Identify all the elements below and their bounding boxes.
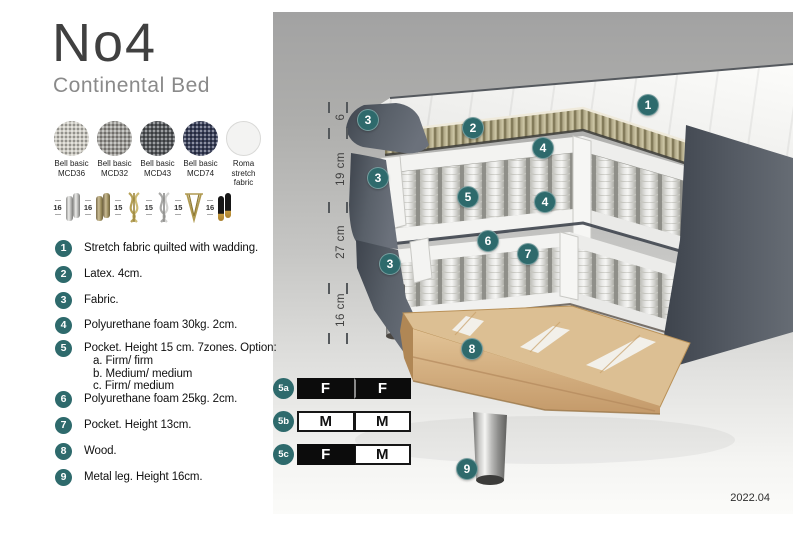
feature-text: Polyurethane foam 25kg. 2cm. [84,391,289,408]
fabric-swatch: Bell basicMCD74 [179,121,222,188]
feature-number-badge: 1 [55,240,72,257]
dimension-tick [328,202,330,213]
diagram-marker-1: 1 [637,94,659,116]
feature-number-badge: 5 [55,340,72,357]
feature-text: Stretch fabric quilted with wadding. [84,240,289,257]
feature-text: Polyurethane foam 30kg. 2cm. [84,317,289,334]
chrome-cylinder-leg-icon [63,192,83,222]
diagram-marker-5: 5 [457,186,479,208]
diagram-marker-2: 2 [462,117,484,139]
feature-item-8: 8Wood. [55,443,289,460]
firmness-bar: MM [297,411,411,432]
leg-option: 16 [205,185,236,229]
diagram-marker-6: 6 [477,230,499,252]
firmness-cell: M [355,411,412,432]
infographic-page: No4 Continental Bed Bell basicMCD36 Bell… [0,0,800,533]
silver-curved-leg-icon [154,191,174,223]
fabric-swatch: Bell basicMCD43 [136,121,179,188]
fabric-swatch-icon [97,121,132,156]
fabric-swatch-icon [226,121,261,156]
firmness-cell: F [297,378,354,399]
fabric-swatch: Romastretch fabric [222,121,265,188]
feature-item-5: 5Pocket. Height 15 cm. 7zones. Option:a.… [55,340,289,393]
leg-option: 15 [113,185,144,229]
feature-number-badge: 3 [55,292,72,309]
page-subtitle: Continental Bed [53,74,210,98]
bronze-cylinder-leg-icon [94,192,114,222]
dimension-tick [346,202,348,213]
diagram-marker-3: 3 [379,253,401,275]
hairpin-leg-icon [183,191,205,223]
fabric-swatch-icon [54,121,89,156]
firmness-cell: M [355,444,412,465]
firmness-badge: 5c [273,444,294,465]
diagram-marker-3: 3 [367,167,389,189]
fabric-swatch: Bell basicMCD32 [93,121,136,188]
black-gold-cylinder-leg-icon [216,192,236,222]
dimension-label: 16 cm [335,285,347,335]
feature-item-1: 1Stretch fabric quilted with wadding. [55,240,289,257]
firmness-bar: FF [297,378,411,399]
dimension-label: 27 cm [335,217,347,267]
leg-option: 15 [174,185,205,229]
diagram-marker-8: 8 [461,338,483,360]
fabric-swatch: Bell basicMCD36 [50,121,93,188]
feature-item-4: 4Polyurethane foam 30kg. 2cm. [55,317,289,334]
feature-text: Pocket. Height 13cm. [84,417,289,434]
fabric-swatches: Bell basicMCD36 Bell basicMCD32 Bell bas… [50,121,265,188]
diagram-marker-4: 4 [534,191,556,213]
feature-item-3: 3Fabric. [55,292,289,309]
diagram-marker-9: 9 [456,458,478,480]
feature-item-6: 6Polyurethane foam 25kg. 2cm. [55,391,289,408]
firmness-cell: F [297,444,355,465]
leg-option: 15 [144,185,175,229]
feature-number-badge: 6 [55,391,72,408]
dimension-tick [328,102,330,113]
firmness-badge: 5a [273,378,294,399]
feature-number-badge: 8 [55,443,72,460]
gold-curved-leg-icon [124,191,144,223]
feature-number-badge: 9 [55,469,72,486]
feature-text: Fabric. [84,292,289,309]
feature-item-7: 7Pocket. Height 13cm. [55,417,289,434]
page-title: No4 [52,16,157,70]
feature-text: Wood. [84,443,289,460]
fabric-swatch-icon [183,121,218,156]
feature-number-badge: 7 [55,417,72,434]
dimension-label: 19 cm [335,144,347,194]
leg-option: 16 [52,185,83,229]
diagram-marker-4: 4 [532,137,554,159]
feature-text: Latex. 4cm. [84,266,289,283]
diagram-marker-3: 3 [357,109,379,131]
firmness-badge: 5b [273,411,294,432]
feature-number-badge: 2 [55,266,72,283]
firmness-bar: FM [297,444,411,465]
leg-option: 16 [83,185,114,229]
leg-options: 16 16 15 15 [52,185,235,229]
feature-item-2: 2Latex. 4cm. [55,266,289,283]
fabric-swatch-icon [140,121,175,156]
feature-text: Metal leg. Height 16cm. [84,469,289,486]
diagram-marker-7: 7 [517,243,539,265]
firmness-cell: F [354,378,411,399]
feature-text: Pocket. Height 15 cm. 7zones. Option:a. … [84,340,289,393]
feature-options: a. Firm/ firmb. Medium/ mediumc. Firm/ m… [93,355,289,393]
dimension-tick [328,283,330,294]
feature-item-9: 9Metal leg. Height 16cm. [55,469,289,486]
dimension-label: 6 [335,92,347,142]
version-label: 2022.04 [700,492,770,504]
dimension-tick [328,333,330,344]
firmness-cell: M [297,411,355,432]
dimension-tick [328,128,330,139]
feature-number-badge: 4 [55,317,72,334]
